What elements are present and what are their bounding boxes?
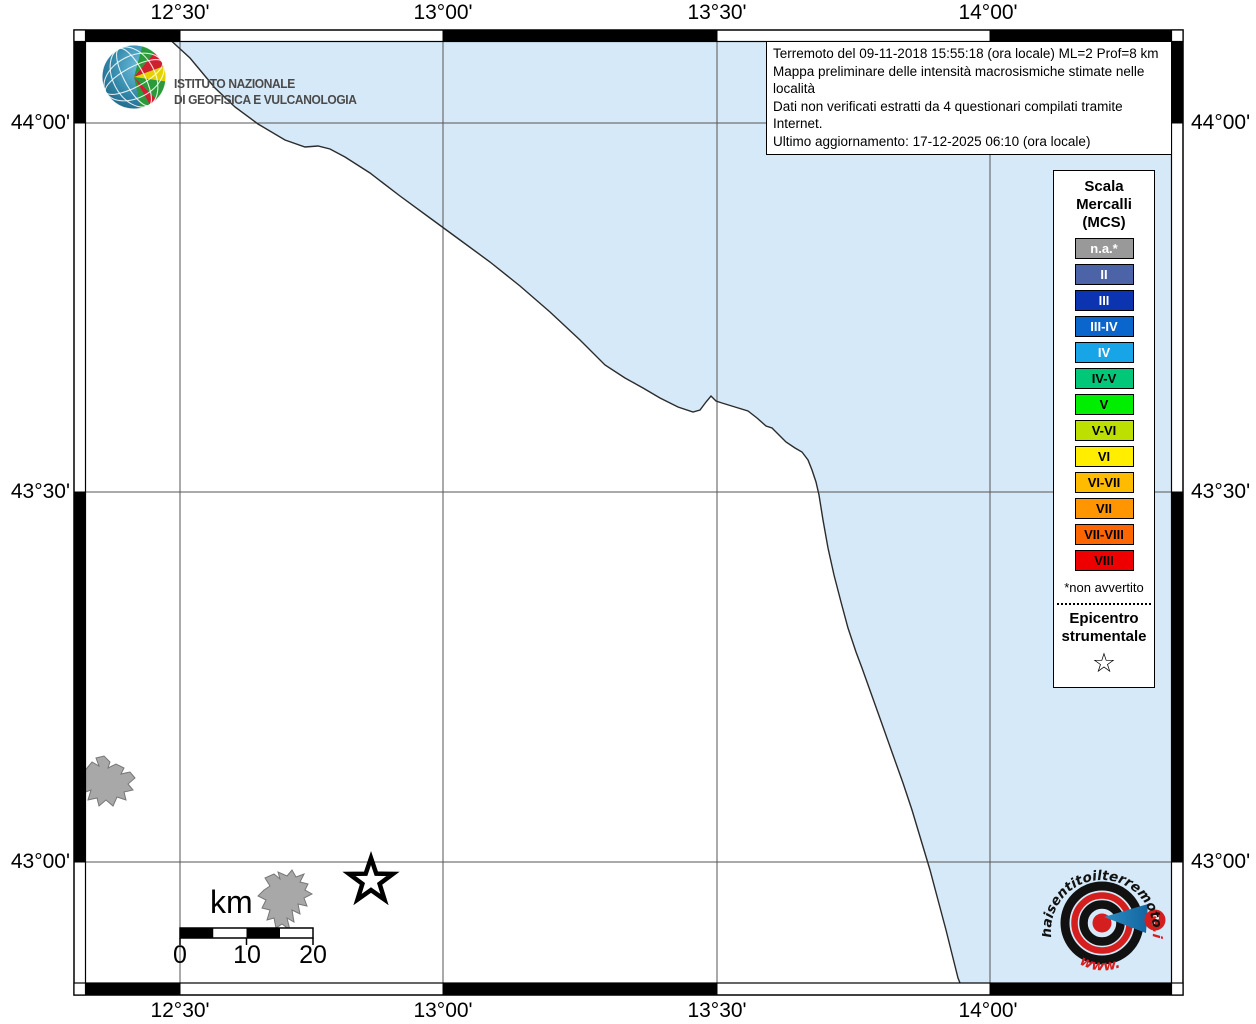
legend-intensity-box: VIII (1075, 550, 1134, 571)
legend-title-line1: Scala (1054, 178, 1154, 196)
legend-intensity-label: n.a.* (1090, 241, 1117, 256)
legend-intensity-box: n.a.* (1075, 238, 1134, 259)
axis-label-top-1230: 12°30' (130, 1, 230, 25)
ingv-logo-line2: DI GEOFISICA E VULCANOLOGIA (174, 93, 357, 109)
legend-intensity-box: III (1075, 290, 1134, 311)
legend-intensity-box: VI (1075, 446, 1134, 467)
legend-intensity-box: V-VI (1075, 420, 1134, 441)
axis-label-bottom-1400: 14°00' (938, 999, 1038, 1023)
legend-epicenter-line1: Epicentro (1054, 610, 1154, 628)
epicenter-star-icon: ☆ (1054, 649, 1154, 679)
legend-intensity-box: VI-VII (1075, 472, 1134, 493)
legend-intensity-box: VII (1075, 498, 1134, 519)
ingv-globe-icon (100, 43, 170, 113)
legend-intensity-box: V (1075, 394, 1134, 415)
legend-epicenter-title: Epicentro strumentale (1054, 610, 1154, 646)
ingv-logo-line1: ISTITUTO NAZIONALE (174, 77, 357, 93)
axis-label-top-1330: 13°30' (667, 1, 767, 25)
scalebar-tick-20: 20 (283, 941, 343, 970)
legend-intensity-label: III-IV (1090, 319, 1117, 334)
axis-label-left-4330: 43°30' (0, 480, 70, 504)
legend-intensity-label: VII (1096, 501, 1112, 516)
axis-label-left-4300: 43°00' (0, 850, 70, 874)
legend-intensity-label: VI (1098, 449, 1110, 464)
legend-epicenter-line2: strumentale (1054, 628, 1154, 646)
legend-intensity-label: IV-V (1092, 371, 1117, 386)
legend-footnote: *non avvertito (1054, 580, 1154, 595)
scalebar-unit-label: km (210, 884, 290, 921)
info-line-event: Terremoto del 09-11-2018 15:55:18 (ora l… (773, 45, 1165, 63)
legend-intensity-label: IV (1098, 345, 1110, 360)
legend-intensity-label: III (1099, 293, 1110, 308)
axis-label-right-4330: 43°30' (1191, 480, 1256, 504)
axis-label-left-4400: 44°00' (0, 111, 70, 135)
mercalli-legend: Scala Mercalli (MCS) n.a.* II III III-IV… (1053, 170, 1155, 688)
watermark-logo: ? haisentitoilterremoto.it www. (1042, 861, 1174, 987)
scalebar-tick-0: 0 (150, 941, 210, 970)
legend-intensity-label: VII-VIII (1084, 527, 1124, 542)
legend-intensity-label: V-VI (1092, 423, 1117, 438)
info-line-map: Mappa preliminare delle intensità macros… (773, 63, 1165, 98)
earthquake-info-box: Terremoto del 09-11-2018 15:55:18 (ora l… (766, 41, 1172, 155)
legend-title: Scala Mercalli (MCS) (1054, 178, 1154, 232)
legend-intensity-label: II (1100, 267, 1107, 282)
legend-intensity-box: II (1075, 264, 1134, 285)
legend-title-line2: Mercalli (1054, 196, 1154, 214)
macroseismic-map-page: 12°30' 13°00' 13°30' 14°00' 12°30' 13°00… (0, 0, 1256, 1024)
legend-intensity-box: IV-V (1075, 368, 1134, 389)
scalebar-tick-10: 10 (217, 941, 277, 970)
axis-label-bottom-1230: 12°30' (130, 999, 230, 1023)
axis-label-bottom-1330: 13°30' (667, 999, 767, 1023)
legend-intensity-label: VI-VII (1088, 475, 1121, 490)
legend-intensity-box: IV (1075, 342, 1134, 363)
legend-intensity-box: III-IV (1075, 316, 1134, 337)
info-line-data: Dati non verificati estratti da 4 questi… (773, 98, 1165, 133)
axis-label-top-1300: 13°00' (393, 1, 493, 25)
info-line-update: Ultimo aggiornamento: 17-12-2025 06:10 (… (773, 133, 1165, 151)
legend-intensity-box: VII-VIII (1075, 524, 1134, 545)
axis-label-right-4300: 43°00' (1191, 850, 1256, 874)
axis-label-bottom-1300: 13°00' (393, 999, 493, 1023)
axis-label-top-1400: 14°00' (938, 1, 1038, 25)
legend-scale-boxes: n.a.* II III III-IV IV IV-V V V-VI VI (1054, 238, 1154, 571)
legend-separator (1057, 603, 1151, 605)
ingv-logo-text: ISTITUTO NAZIONALE DI GEOFISICA E VULCAN… (174, 77, 357, 108)
legend-title-line3: (MCS) (1054, 214, 1154, 232)
legend-intensity-label: V (1100, 397, 1109, 412)
legend-intensity-label: VIII (1094, 553, 1114, 568)
axis-label-right-4400: 44°00' (1191, 111, 1256, 135)
